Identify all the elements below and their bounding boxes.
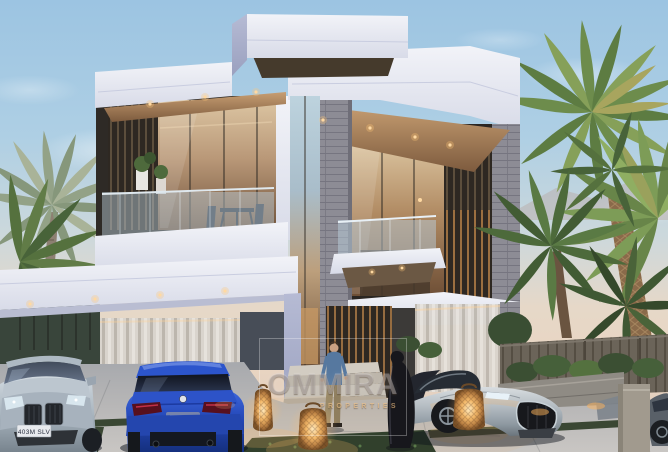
wicker-lantern-centre — [288, 403, 338, 452]
planter-pot — [136, 170, 148, 190]
downlight — [26, 300, 34, 308]
license-plate: 403M SLV — [17, 425, 51, 437]
downlight — [91, 295, 99, 303]
curtain-glass-left — [100, 318, 240, 368]
bmw-roundel — [180, 396, 187, 403]
license-plate-text: 403M SLV — [18, 429, 51, 436]
mid-balcony — [330, 216, 446, 288]
penthouse-box — [247, 14, 408, 58]
downlight — [252, 88, 260, 96]
dark-glass — [240, 312, 286, 370]
downlight — [399, 265, 406, 272]
wheel — [82, 428, 102, 452]
downlight — [319, 116, 327, 124]
wheel — [128, 432, 140, 452]
downlight — [201, 93, 209, 101]
downlight — [366, 124, 374, 132]
downlight — [146, 100, 154, 108]
diffuser — [150, 432, 216, 446]
downlight — [446, 141, 454, 149]
downlight — [411, 133, 419, 141]
render-scene: 403M SLV — [0, 0, 668, 452]
villa-render-photo: 403M SLV — [0, 0, 668, 452]
car-blue-bmw — [120, 361, 248, 452]
wheel — [228, 430, 242, 452]
head — [330, 344, 339, 353]
downlight — [156, 291, 164, 299]
downlight — [221, 287, 229, 295]
downlight — [369, 269, 376, 276]
